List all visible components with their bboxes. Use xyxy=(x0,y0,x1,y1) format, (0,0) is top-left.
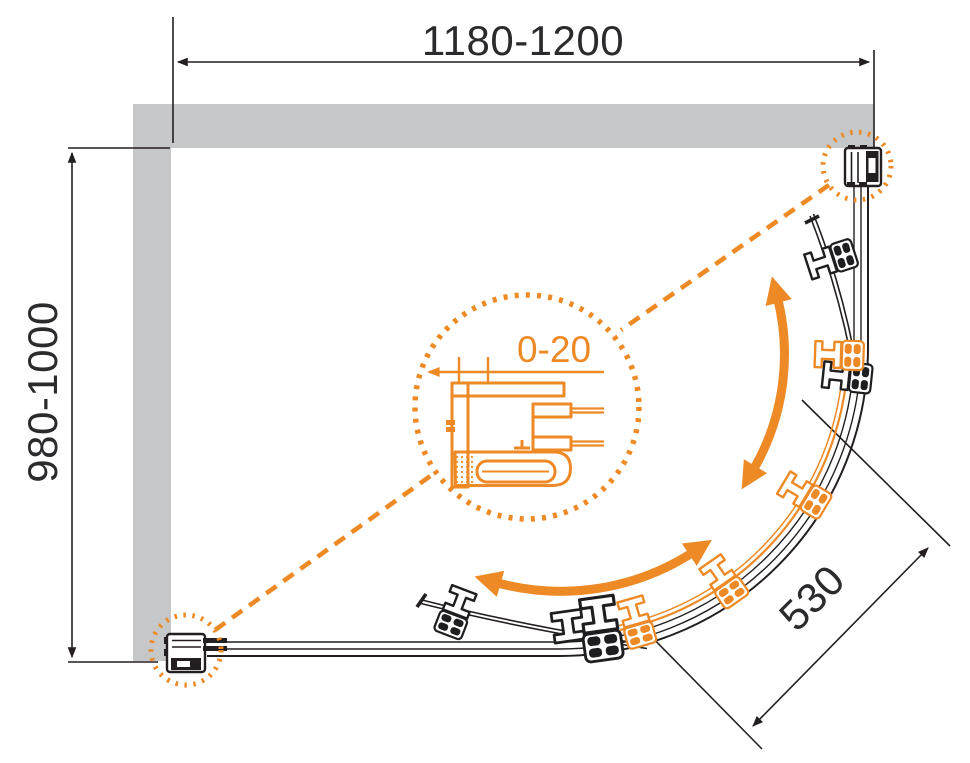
roller-cluster-orange-top xyxy=(815,340,864,371)
glass-quadrant xyxy=(207,187,868,656)
radius-dimension-label: 530 xyxy=(770,556,854,640)
callout-line-bottom xyxy=(215,472,436,630)
roller-cluster-orange-lower xyxy=(698,553,750,609)
profile-cross-section xyxy=(446,383,604,487)
adjustment-dimension-label: 0-20 xyxy=(517,329,591,370)
depth-dimension-label: 980-1000 xyxy=(19,301,66,483)
radius-dimension: 530 xyxy=(637,400,950,749)
roller-cluster-black-top xyxy=(804,238,859,281)
black-door-top xyxy=(805,214,854,352)
shower-enclosure-diagram: 1180-1200 980-1000 530 xyxy=(0,0,970,763)
roller-cluster-black-big xyxy=(551,595,624,663)
callout-line-top xyxy=(621,185,829,330)
width-dimension-label: 1180-1200 xyxy=(422,17,624,64)
wall-left xyxy=(133,104,171,661)
adjustment-dimension: 0-20 xyxy=(429,329,604,383)
door-swing-arrow-bottom xyxy=(494,551,695,591)
door-swing-arrow-right xyxy=(752,296,784,472)
wall-profile-top-right xyxy=(845,145,881,187)
wall-top xyxy=(133,104,874,148)
